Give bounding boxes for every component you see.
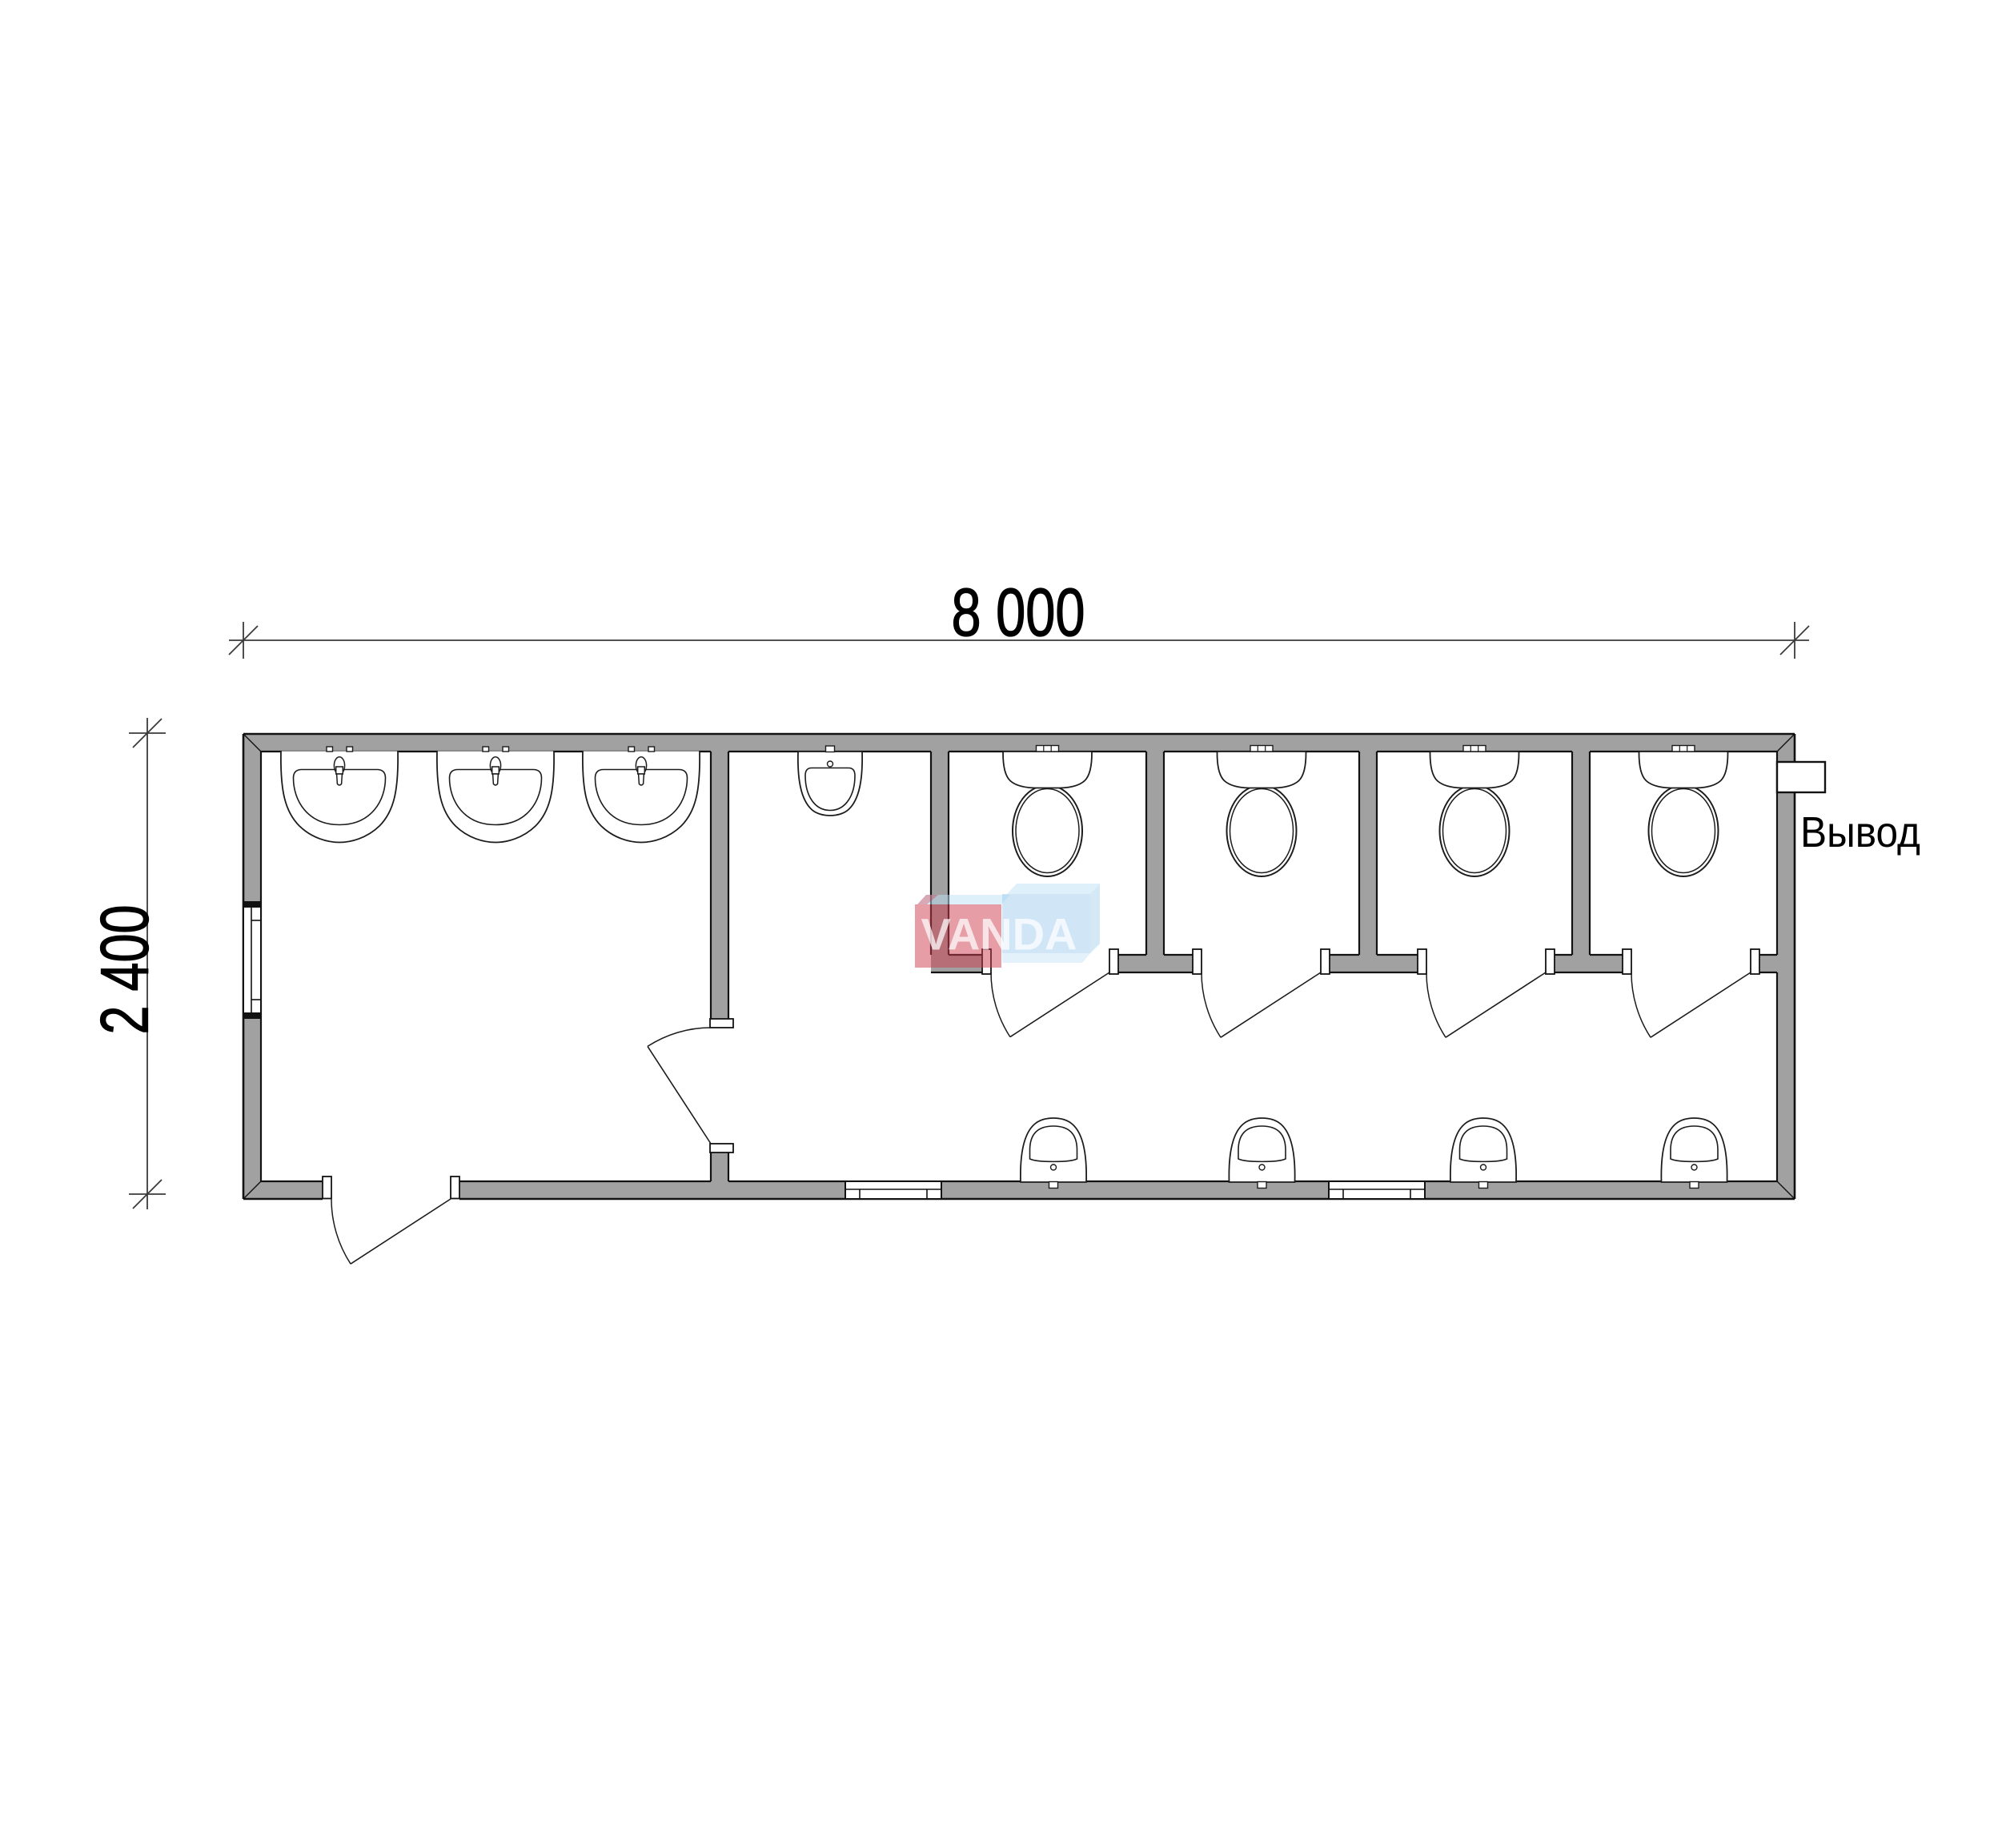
svg-text:VANDA: VANDA: [921, 909, 1077, 960]
svg-text:2 400: 2 400: [87, 905, 162, 1035]
svg-text:Вывод: Вывод: [1800, 808, 1920, 856]
svg-text:8 000: 8 000: [952, 575, 1085, 650]
